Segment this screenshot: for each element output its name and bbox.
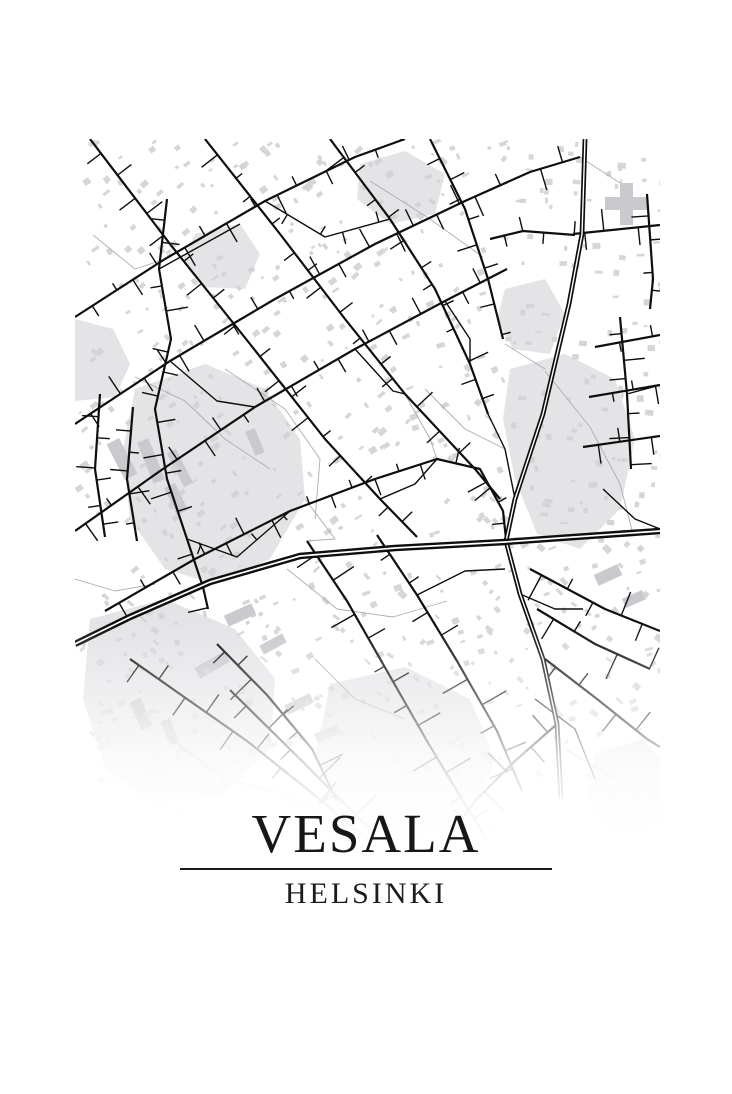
street-map-graphic [75, 139, 660, 839]
title-divider [180, 868, 552, 870]
poster-subtitle: HELSINKI [0, 879, 732, 909]
street-map [75, 139, 660, 839]
poster-title: VESALA [0, 806, 732, 861]
map-poster: VESALA HELSINKI [0, 0, 732, 1094]
